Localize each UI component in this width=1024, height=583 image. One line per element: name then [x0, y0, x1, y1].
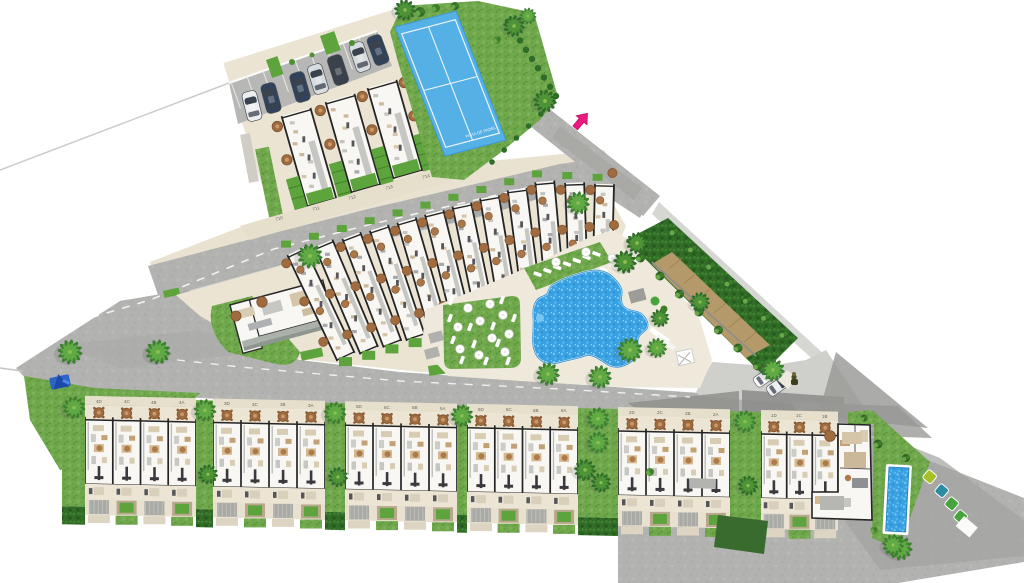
svg-text:4A: 4A [179, 400, 185, 405]
svg-text:2A: 2A [713, 412, 719, 417]
svg-text:5B: 5B [412, 405, 418, 410]
svg-text:3D: 3D [224, 401, 231, 406]
svg-text:2B: 2B [685, 411, 691, 416]
svg-text:1D: 1D [771, 413, 778, 418]
svg-text:2C: 2C [657, 410, 664, 415]
svg-text:5D: 5D [356, 404, 363, 409]
svg-text:1C: 1C [796, 413, 803, 418]
svg-text:6B: 6B [533, 408, 539, 413]
svg-text:3B: 3B [280, 402, 286, 407]
svg-text:5C: 5C [384, 405, 391, 410]
svg-text:6A: 6A [561, 408, 567, 413]
svg-text:6C: 6C [506, 407, 513, 412]
svg-text:4C: 4C [124, 399, 131, 404]
svg-text:4B: 4B [151, 400, 157, 405]
svg-text:5A: 5A [440, 406, 446, 411]
svg-text:3A: 3A [308, 403, 314, 408]
svg-text:6D: 6D [478, 407, 485, 412]
svg-text:3C: 3C [252, 402, 259, 407]
svg-text:2D: 2D [629, 410, 636, 415]
svg-text:1B: 1B [822, 414, 828, 419]
svg-text:4D: 4D [96, 399, 103, 404]
